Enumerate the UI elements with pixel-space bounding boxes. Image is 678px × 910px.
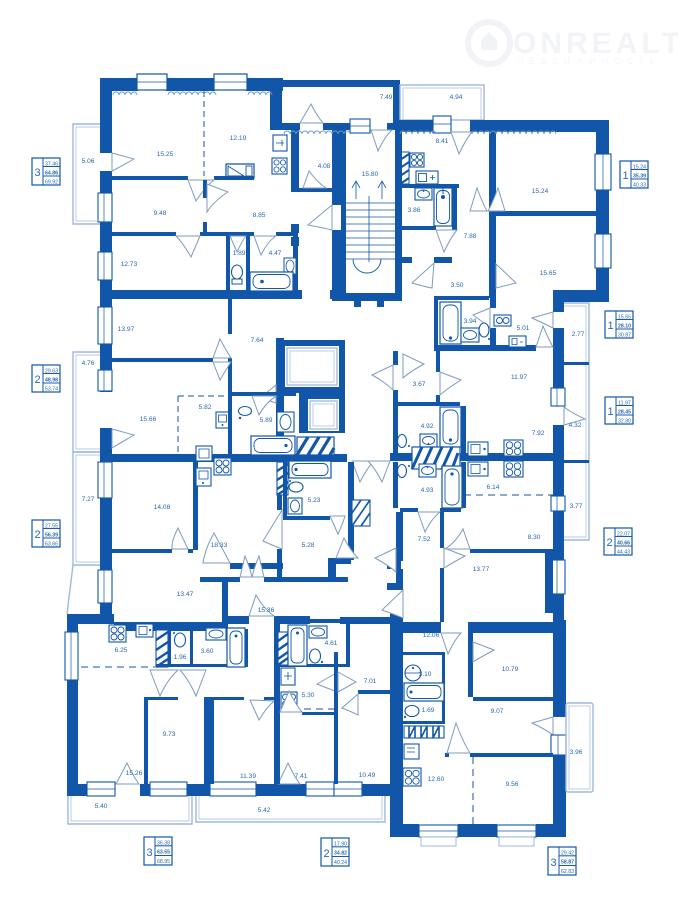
svg-text:5.89: 5.89 [260,417,273,424]
svg-text:1.89: 1.89 [233,250,246,257]
svg-text:5.28: 5.28 [302,542,315,549]
svg-text:9.48: 9.48 [154,210,167,217]
svg-text:30.87: 30.87 [618,333,631,339]
svg-text:2: 2 [323,848,329,860]
svg-text:3.60: 3.60 [201,648,214,655]
svg-text:35.39: 35.39 [633,174,646,180]
svg-text:40.24: 40.24 [334,860,347,866]
svg-text:3: 3 [34,167,40,179]
svg-text:5.01: 5.01 [517,325,530,332]
svg-text:63.55: 63.55 [157,850,170,856]
svg-text:3: 3 [146,847,152,859]
svg-text:1: 1 [607,406,613,418]
svg-text:4.93: 4.93 [421,487,434,494]
svg-text:63.66: 63.66 [45,542,58,548]
svg-text:15.24: 15.24 [633,165,646,171]
svg-text:8.30: 8.30 [528,534,541,541]
svg-text:10.79: 10.79 [502,666,519,673]
svg-text:3.67: 3.67 [413,381,426,388]
svg-text:4.32: 4.32 [569,422,582,429]
svg-text:1: 1 [622,170,628,182]
svg-text:44.43: 44.43 [617,550,630,556]
svg-text:10.49: 10.49 [359,772,376,779]
svg-text:3: 3 [550,857,556,869]
svg-text:4.94: 4.94 [450,94,463,101]
svg-text:4.61: 4.61 [325,640,338,647]
svg-text:15.26: 15.26 [126,770,143,777]
svg-text:64.86: 64.86 [45,171,58,177]
svg-text:5.42: 5.42 [258,807,271,814]
svg-text:18.33: 18.33 [211,542,228,549]
svg-text:69.92: 69.92 [45,180,58,186]
svg-text:НЕДВИЖИМОСТЬ: НЕДВИЖИМОСТЬ [517,56,661,66]
svg-text:37.46: 37.46 [45,162,58,168]
svg-text:28.10: 28.10 [618,324,631,330]
svg-text:58.87: 58.87 [561,860,574,866]
svg-text:5.06: 5.06 [82,158,95,165]
svg-text:7.41: 7.41 [295,773,308,780]
svg-text:53.74: 53.74 [45,387,58,393]
svg-text:12.73: 12.73 [121,261,138,268]
svg-text:29.63: 29.63 [45,369,58,375]
svg-text:7.64: 7.64 [251,337,264,344]
svg-text:3.50: 3.50 [451,282,464,289]
svg-text:7.88: 7.88 [464,233,477,240]
svg-text:9.73: 9.73 [163,731,176,738]
svg-text:6.14: 6.14 [487,484,500,491]
svg-text:7.27: 7.27 [82,496,95,503]
svg-text:1: 1 [607,320,613,332]
svg-text:1.96: 1.96 [174,654,187,661]
svg-text:68.95: 68.95 [157,859,170,865]
svg-text:13.47: 13.47 [177,591,194,598]
svg-text:3.77: 3.77 [570,503,583,510]
svg-text:7.01: 7.01 [364,678,377,685]
svg-text:7.52: 7.52 [418,536,431,543]
svg-text:4.08: 4.08 [318,163,331,170]
svg-text:5.40: 5.40 [95,803,108,810]
svg-text:4.92: 4.92 [421,423,434,430]
svg-text:5.82: 5.82 [199,404,212,411]
svg-text:40.33: 40.33 [633,183,646,189]
svg-text:29.42: 29.42 [561,851,574,857]
svg-text:15.66: 15.66 [140,416,157,423]
svg-text:1.69: 1.69 [422,707,435,714]
svg-text:13.77: 13.77 [473,566,490,573]
svg-text:3.94: 3.94 [464,318,477,325]
svg-text:17.90: 17.90 [334,842,347,848]
svg-text:2: 2 [34,374,40,386]
svg-text:32.80: 32.80 [618,419,631,425]
svg-text:7.92: 7.92 [532,430,545,437]
svg-text:9.07: 9.07 [491,708,504,715]
svg-text:5.23: 5.23 [308,497,321,504]
svg-text:3.10: 3.10 [419,671,432,678]
svg-text:8.41: 8.41 [436,138,449,145]
svg-text:5.30: 5.30 [302,692,315,699]
svg-text:14.08: 14.08 [154,504,171,511]
svg-text:2: 2 [606,537,612,549]
svg-text:22.07: 22.07 [617,532,630,538]
svg-text:2.77: 2.77 [572,331,585,338]
svg-text:2: 2 [34,529,40,541]
svg-text:34.82: 34.82 [334,851,347,857]
svg-text:7.49: 7.49 [380,94,393,101]
svg-text:12.60: 12.60 [428,776,445,783]
svg-text:15.36: 15.36 [258,607,275,614]
svg-text:4.47: 4.47 [269,250,282,257]
svg-text:11.97: 11.97 [511,374,527,381]
svg-text:6.25: 6.25 [115,647,128,654]
svg-text:62.83: 62.83 [561,869,574,875]
svg-text:15.65: 15.65 [618,315,631,321]
svg-text:15.24: 15.24 [532,188,549,195]
svg-text:11.39: 11.39 [240,773,256,780]
svg-text:15.65: 15.65 [540,270,557,277]
svg-text:40.66: 40.66 [617,541,630,547]
svg-text:15.25: 15.25 [157,151,174,158]
svg-text:13.97: 13.97 [118,326,135,333]
svg-text:3.86: 3.86 [408,207,421,214]
svg-text:9.56: 9.56 [506,781,519,788]
svg-text:28.45: 28.45 [618,410,631,416]
svg-text:36.38: 36.38 [157,841,170,847]
svg-text:8.85: 8.85 [253,212,266,219]
svg-text:56.39: 56.39 [45,533,58,539]
svg-text:12.06: 12.06 [423,632,440,639]
svg-text:11.97: 11.97 [618,401,631,407]
svg-text:4.76: 4.76 [82,360,95,367]
svg-text:48.98: 48.98 [45,378,58,384]
svg-text:3.96: 3.96 [570,749,583,756]
svg-text:27.55: 27.55 [45,524,58,530]
svg-text:12.19: 12.19 [230,135,247,142]
svg-text:15.80: 15.80 [362,171,379,178]
